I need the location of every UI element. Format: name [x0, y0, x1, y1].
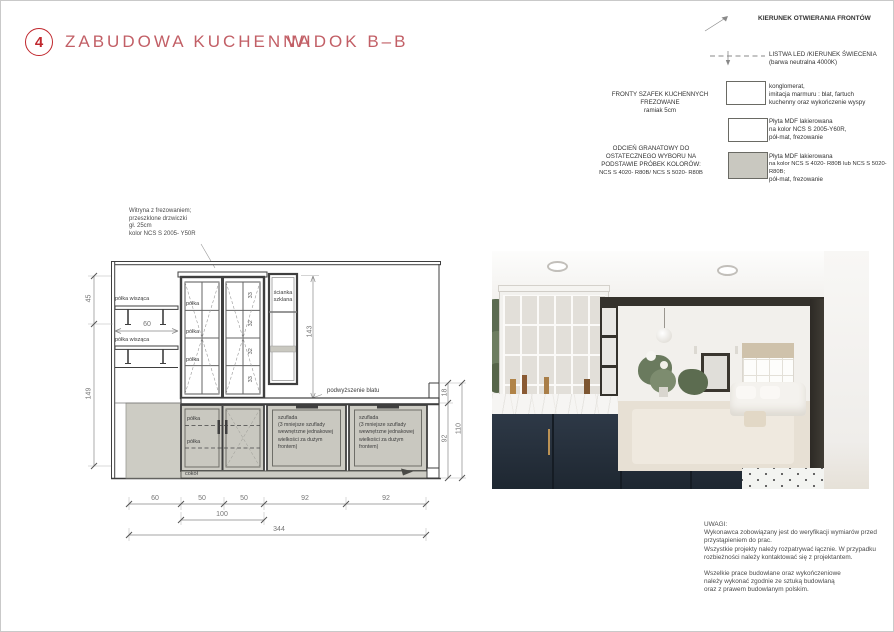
recessed-light — [547, 261, 568, 272]
legend-swatch-mdf-white — [728, 118, 768, 142]
dim-18: 18 — [442, 378, 449, 408]
sofa-cushion — [760, 386, 780, 399]
drawer-line: wewnętrzne jednakowej — [278, 429, 340, 436]
dim-92-right: 92 — [442, 424, 449, 454]
legend-item-konglomerat: konglomerat, imitacja marmuru : blat, fa… — [769, 83, 865, 106]
wall-sconce — [735, 346, 738, 354]
drawer-line: szuflada — [278, 415, 340, 422]
potted-plant — [678, 369, 708, 395]
witryna-annotation: Witryna z frezowaniem; przeszklone drzwi… — [129, 208, 196, 238]
note-fronts: FRONTY SZAFEK KUCHENNYCH FREZOWANE ramia… — [609, 91, 711, 115]
legend-text-line: imitacja marmuru : blat, fartuch — [769, 91, 865, 99]
hanging-shelf-label-2: półka wisząca — [115, 337, 149, 344]
note-line: PODSTAWIE PRÓBEK KOLORÓW: — [591, 161, 711, 169]
glazed-partition — [600, 306, 618, 396]
notes-line: Wszelkie prace budowlane oraz wykończeni… — [704, 570, 877, 578]
legend-opening-label: KIERUNEK OTWIERANIA FRONTÓW — [758, 15, 871, 23]
dim-glass-height: 143 — [307, 317, 314, 347]
tile-floor — [742, 468, 826, 489]
notes-line: rozbieżności należy kontaktować się z pr… — [704, 554, 877, 562]
hanging-shelf-label-1: półka wisząca — [115, 296, 149, 303]
annotation-line: kolor NCS S 2005- Y50R — [129, 231, 196, 239]
door-frame-right-post — [810, 299, 824, 473]
legend-led-label: LISTWA LED /KIERUNEK ŚWIECENIA (barwa ne… — [769, 51, 877, 67]
legend-swatch-mdf-navy — [728, 152, 768, 179]
drawer-line: wielkości za dużym — [359, 437, 421, 444]
recessed-light — [717, 265, 738, 276]
legend-led-line2: (barwa neutralna 4000K) — [769, 59, 877, 67]
dim-110: 110 — [456, 414, 463, 444]
pane-height-4: 33 — [248, 364, 255, 394]
legend-text-line: na kolor NCS S 4020- R80B lub NCS S 5020… — [769, 161, 893, 177]
drawer-line: wewnętrzne jednakowej — [359, 429, 421, 436]
drawer-line: szuflada — [359, 415, 421, 422]
notes-line: przystąpieniem do prac. — [704, 537, 877, 545]
drawer-label-2: szuflada (3 mniejsze szuflady wewnętrzne… — [359, 415, 421, 451]
bottle — [544, 377, 549, 395]
door-gap — [552, 414, 554, 489]
wall-sconce — [694, 346, 697, 354]
legend-text-line: na kolor NCS S 2005-Y60R, — [769, 126, 846, 134]
note-navy-shade: ODCIEŃ GRANATOWY DO OSTATECZNEGO WYBORU … — [591, 145, 711, 177]
annotation-line: przeszklone drzwiczki — [129, 216, 196, 224]
legend-item-mdf-navy: Płyta MDF lakierowana na kolor NCS S 402… — [769, 153, 893, 184]
counter-raise-label: podwyższenie blatu — [327, 388, 379, 395]
drawing-sheet: 4 ZABUDOWA KUCHENNA WIDOK B–B KIERUNEK O… — [0, 0, 894, 632]
dim-92a: 92 — [301, 495, 309, 502]
legend-text-line: Płyta MDF lakierowana — [769, 118, 846, 126]
pendant-lamp — [656, 328, 672, 343]
dim-344: 344 — [273, 526, 285, 533]
sofa-cushion — [736, 386, 756, 399]
legend-item-mdf-white: Płyta MDF lakierowana na kolor NCS S 200… — [769, 118, 846, 141]
vase — [659, 387, 668, 397]
dim-45: 45 — [86, 284, 93, 314]
dim-100: 100 — [216, 511, 228, 518]
glass-wall-line: szklana — [269, 297, 297, 304]
legend-led-line1: LISTWA LED /KIERUNEK ŚWIECENIA — [769, 51, 877, 59]
notes-line: oraz z prawem budowlanym polskim. — [704, 586, 877, 594]
legend-text-line: Płyta MDF lakierowana — [769, 153, 893, 161]
dim-shelf-width: 60 — [143, 321, 151, 328]
witryna-shelf-label: półka — [186, 301, 199, 308]
dim-50a: 50 — [198, 495, 206, 502]
dim-50b: 50 — [240, 495, 248, 502]
brass-handle — [548, 429, 550, 455]
legend-text-line: pół-mat, frezowanie — [769, 176, 893, 184]
dim-60: 60 — [151, 495, 159, 502]
dim-149: 149 — [86, 379, 93, 409]
view-label: WIDOK B–B — [287, 32, 408, 52]
bottle — [510, 379, 516, 395]
bottle — [584, 379, 590, 395]
drawer-line: frontem) — [278, 444, 340, 451]
legend-text-line: kuchenny oraz wykończenie wyspy — [769, 99, 865, 107]
note-line: OSTATECZNEGO WYBORU NA — [591, 153, 711, 161]
partition-mullion — [602, 365, 616, 368]
flower — [660, 361, 668, 369]
kitchen-render-photo — [492, 251, 869, 489]
note-line: NCS S 4020- R80B/ NCS S 5020- R80B — [591, 169, 711, 177]
cabinet-cornice — [498, 285, 610, 292]
pane-height-3: 32 — [248, 336, 255, 366]
partition-mullion — [602, 335, 616, 338]
rug — [632, 409, 794, 464]
note-line: ODCIEŃ GRANATOWY DO — [591, 145, 711, 153]
pane-height-2: 32 — [248, 308, 255, 338]
annotation-line: gł. 25cm — [129, 223, 196, 231]
witryna-shelf-label: półka — [186, 329, 199, 336]
notes-line: należy wykonać zgodnie ze sztuką budowla… — [704, 578, 877, 586]
note-line: ramiak 5cm — [609, 107, 711, 115]
drawer-line: wielkości za dużym — [278, 437, 340, 444]
glass-wall-label: ścianka szklana — [269, 290, 297, 303]
legend-text-line: konglomerat, — [769, 83, 865, 91]
base-shelf-label: półka — [187, 439, 200, 446]
legend-swatch-konglomerat — [726, 81, 766, 105]
drawer-line: (3 mniejsze szuflady — [278, 422, 340, 429]
door-frame-top — [600, 297, 824, 306]
roman-shade — [742, 343, 794, 358]
drawer-line: frontem) — [359, 444, 421, 451]
sheet-number: 4 — [35, 34, 43, 51]
pendant-cord — [664, 308, 665, 330]
bottle — [522, 375, 527, 395]
annotation-line: Witryna z frezowaniem; — [129, 208, 196, 216]
notes-spacer — [704, 562, 877, 570]
note-line: FREZOWANE — [609, 99, 711, 107]
witryna-shelf-label: półka — [186, 357, 199, 364]
right-wall — [824, 251, 869, 489]
coffee-table — [744, 411, 766, 427]
notes-block: UWAGI: Wykonawca zobowiązany jest do wer… — [704, 521, 877, 595]
dim-92b: 92 — [382, 495, 390, 502]
legend-text-line: pół-mat, frezowanie — [769, 134, 846, 142]
plinth-label: cokół — [185, 471, 198, 478]
notes-title: UWAGI: — [704, 521, 877, 529]
pane-height-1: 33 — [248, 280, 255, 310]
flower — [646, 351, 656, 361]
drawer-line: (3 mniejsze szuflady — [359, 422, 421, 429]
page-title: ZABUDOWA KUCHENNA — [65, 32, 313, 52]
notes-line: Wykonawca zobowiązany jest do weryfikacj… — [704, 529, 877, 537]
notes-line: Wszystkie projekty należy rozpatrywać łą… — [704, 546, 877, 554]
base-shelf-label: półka — [187, 416, 200, 423]
drawer-label-1: szuflada (3 mniejsze szuflady wewnętrzne… — [278, 415, 340, 451]
sheet-number-badge: 4 — [25, 28, 53, 56]
note-line: FRONTY SZAFEK KUCHENNYCH — [609, 91, 711, 99]
